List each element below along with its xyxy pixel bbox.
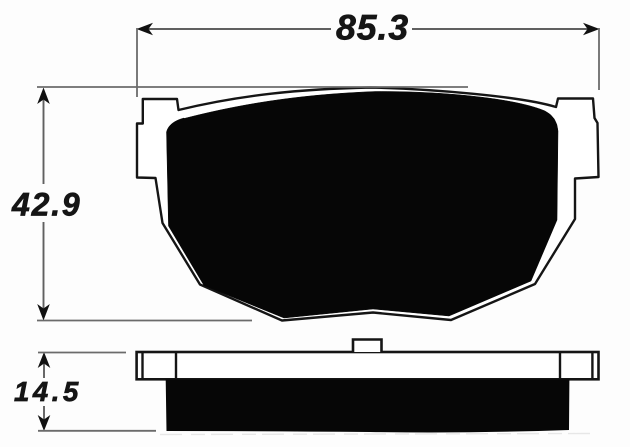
svg-text:42.9: 42.9 [11, 187, 81, 223]
svg-text:14.5: 14.5 [14, 376, 82, 407]
svg-text:85.3: 85.3 [336, 8, 409, 48]
